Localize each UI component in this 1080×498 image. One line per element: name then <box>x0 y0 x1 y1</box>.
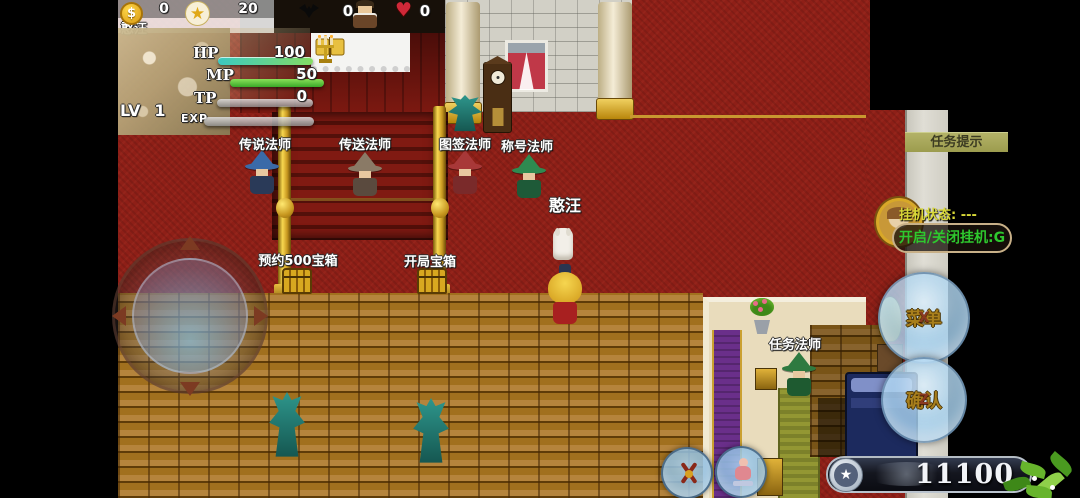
flower-pot <box>748 298 776 334</box>
npc-title-mage[interactable] <box>512 154 546 198</box>
chest-label: 开局宝箱 <box>404 251 456 270</box>
treasure-chest-starter[interactable] <box>417 268 447 294</box>
level-value: 1 <box>150 101 170 120</box>
npc-teleport-mage[interactable] <box>348 152 382 196</box>
pillar-right <box>598 2 632 120</box>
joystick-right-arrow <box>254 306 268 326</box>
menu-button-key: X <box>919 310 930 326</box>
npc-label: 图签法师 <box>439 134 491 153</box>
premium-currency-value: 11100 <box>872 457 1014 493</box>
tp-value: 0 <box>257 87 307 105</box>
star-count: 20 <box>228 1 268 17</box>
npc-quest-mage[interactable] <box>782 352 816 396</box>
currency-star-icon: ★ <box>829 458 863 492</box>
npc-legend-mage[interactable] <box>245 150 279 194</box>
kill-bat-icon <box>299 4 319 18</box>
npc-label: 传说法师 <box>239 134 291 153</box>
joystick-up-arrow <box>180 236 200 250</box>
treasure-chest-preorder[interactable] <box>282 268 312 294</box>
game-screen: 传说法师 传送法师 图签法师 称号法师 任务法师 预约500宝箱 开局宝箱 憨汪… <box>0 0 1080 498</box>
exp-bar <box>204 117 314 126</box>
leaf-decoration <box>1002 452 1080 498</box>
candelabra-icon <box>315 35 335 65</box>
level-label: LV <box>120 101 140 120</box>
quest-hint-header: 任务提示 <box>905 132 1008 152</box>
npc-label: 传送法师 <box>339 134 391 153</box>
banister-knob <box>431 198 449 218</box>
altar-table <box>311 33 410 72</box>
heart-icon: ♥ <box>395 0 412 21</box>
joystick-left-arrow <box>112 306 126 326</box>
player-name-tag: 憨汪 <box>549 192 581 216</box>
player-character <box>548 264 582 328</box>
coin-icon: $ <box>120 2 143 25</box>
pillar-cap <box>596 98 634 120</box>
confirm-button-key: Z <box>919 392 929 408</box>
crest-icon <box>678 461 700 487</box>
grandfather-clock <box>483 62 512 133</box>
gold-drawer <box>755 368 777 390</box>
pray-action-button[interactable] <box>715 446 767 498</box>
heart-count: 0 <box>413 2 437 20</box>
hp-value: 100 <box>255 43 305 61</box>
hp-label: HP <box>193 44 218 62</box>
menu-button[interactable]: 菜单 X <box>878 272 970 364</box>
virtual-joystick[interactable] <box>112 238 268 394</box>
window-lace <box>515 52 539 90</box>
mp-value: 50 <box>267 65 317 83</box>
pet-dog <box>553 228 573 260</box>
npc-label: 任务法师 <box>769 334 821 353</box>
idle-toggle-button[interactable]: 开启/关闭挂机:G <box>892 223 1012 253</box>
banister-knob <box>276 198 294 218</box>
star-icon: ★ <box>185 1 210 26</box>
kill-count: 0 <box>336 2 360 20</box>
idle-status-text: 挂机状态: --- <box>899 204 977 223</box>
npc-sticker-mage[interactable] <box>448 150 482 194</box>
tp-label: TP <box>194 89 216 107</box>
stair-edge-trim <box>286 198 440 201</box>
joystick-pad[interactable] <box>132 258 248 374</box>
confirm-button[interactable]: 确认 Z <box>881 357 967 443</box>
crest-action-button[interactable] <box>661 447 713 498</box>
gold-floor-trim <box>630 115 869 118</box>
npc-label: 称号法师 <box>501 136 553 155</box>
chest-label: 预约500宝箱 <box>258 250 337 269</box>
gold-count: 0 <box>152 1 176 17</box>
pray-icon <box>731 458 755 488</box>
